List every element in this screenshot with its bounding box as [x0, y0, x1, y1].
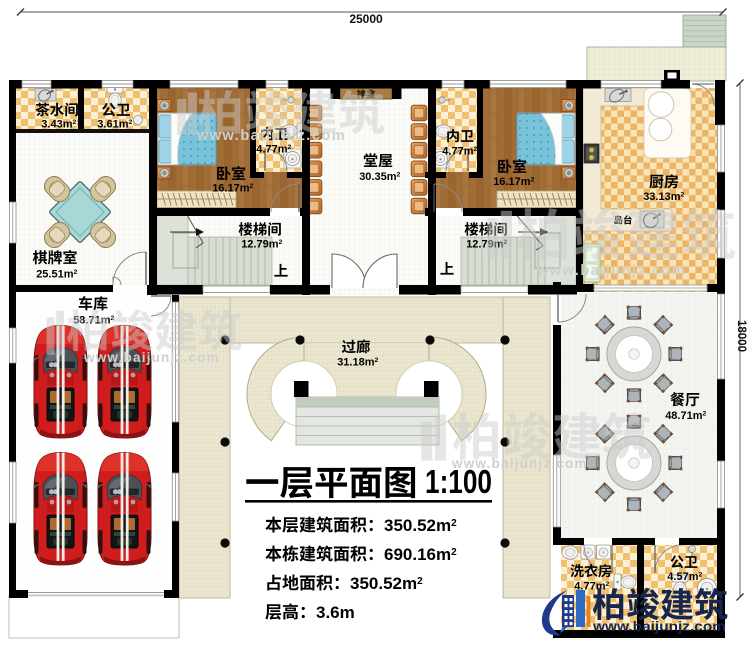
svg-text:4.77m2: 4.77m2: [442, 146, 477, 158]
svg-text:350.52m2: 350.52m2: [384, 516, 457, 535]
svg-text:25.51m2: 25.51m2: [36, 269, 77, 281]
svg-text:25000: 25000: [349, 12, 383, 26]
svg-text:3.6m: 3.6m: [316, 603, 355, 622]
svg-text:16.17m2: 16.17m2: [212, 183, 253, 195]
svg-text:30.35m2: 30.35m2: [359, 171, 400, 183]
svg-text:www.baijunjz.com: www.baijunjz.com: [536, 263, 686, 279]
svg-text:www.baijunjz.com: www.baijunjz.com: [592, 618, 726, 634]
svg-text:350.52m2: 350.52m2: [350, 574, 423, 593]
svg-text:3.61m2: 3.61m2: [97, 119, 132, 131]
svg-text:4.57m2: 4.57m2: [667, 571, 702, 583]
svg-text:33.13m2: 33.13m2: [643, 191, 684, 203]
svg-text:12.79m2: 12.79m2: [241, 239, 282, 251]
svg-text:3.43m2: 3.43m2: [41, 119, 76, 131]
svg-text:www.baijunjz.com: www.baijunjz.com: [196, 128, 346, 144]
svg-text:www.baijunjz.com: www.baijunjz.com: [83, 350, 220, 365]
svg-text:18000: 18000: [735, 320, 747, 352]
svg-text:4.77m2: 4.77m2: [256, 144, 291, 156]
svg-text:690.16m2: 690.16m2: [384, 545, 457, 564]
svg-text:16.17m2: 16.17m2: [493, 176, 534, 188]
svg-text:48.71m2: 48.71m2: [665, 410, 706, 422]
svg-text:31.18m2: 31.18m2: [337, 357, 378, 369]
svg-text:www.baijunjz.com: www.baijunjz.com: [451, 456, 588, 471]
